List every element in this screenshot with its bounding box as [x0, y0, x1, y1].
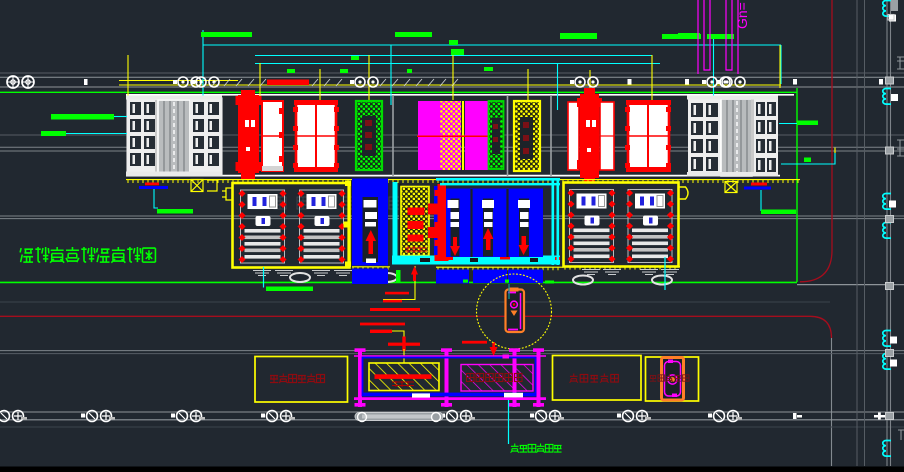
svg-text:Gn=: Gn= — [734, 2, 750, 29]
